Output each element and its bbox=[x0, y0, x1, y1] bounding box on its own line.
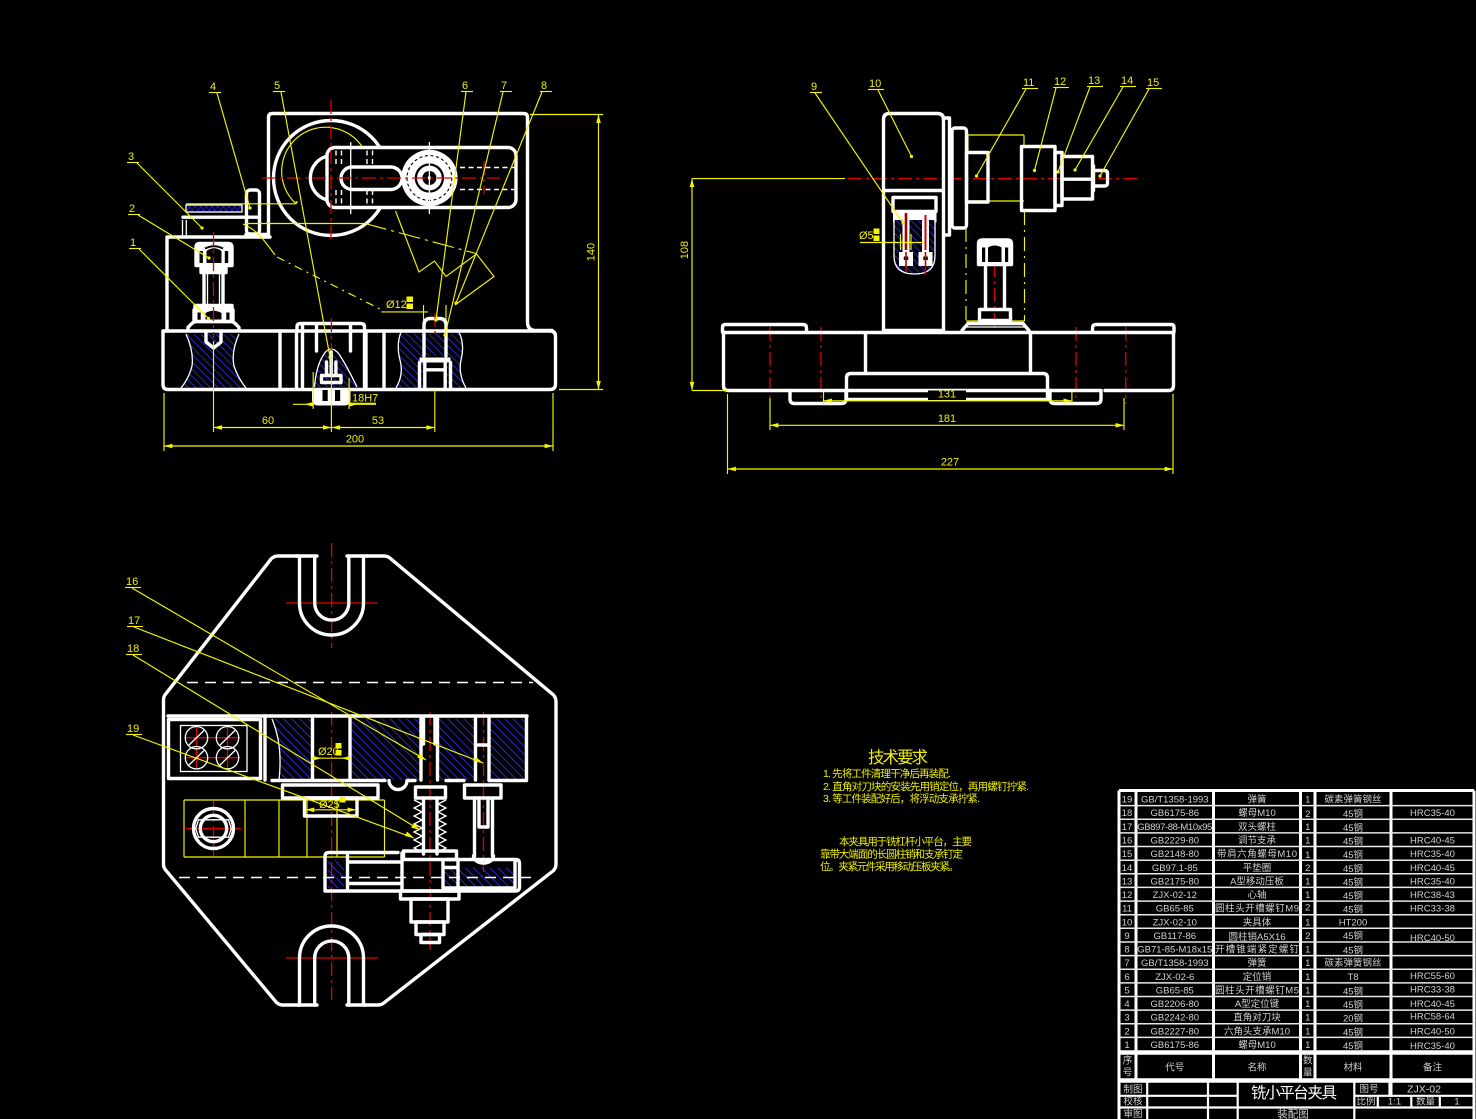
svg-text:螺母M10: 螺母M10 bbox=[1238, 1040, 1275, 1051]
svg-text:GB897-88-M10x95: GB897-88-M10x95 bbox=[1137, 822, 1212, 833]
svg-text:A型移动压板: A型移动压板 bbox=[1230, 875, 1284, 887]
svg-text:9: 9 bbox=[1124, 931, 1129, 942]
svg-text:19: 19 bbox=[127, 723, 139, 735]
svg-text:1. 先将工件清理干净后再装配.: 1. 先将工件清理干净后再装配. bbox=[823, 767, 951, 780]
svg-text:GB65-85: GB65-85 bbox=[1156, 904, 1194, 915]
svg-text:双头螺柱: 双头螺柱 bbox=[1238, 821, 1277, 833]
svg-text:圆柱头开槽螺钉M9: 圆柱头开槽螺钉M9 bbox=[1215, 903, 1299, 915]
svg-text:131: 131 bbox=[938, 389, 956, 401]
svg-text:HRC33-38: HRC33-38 bbox=[1410, 904, 1455, 915]
svg-text:13: 13 bbox=[1122, 876, 1133, 887]
svg-text:3. 等工件装配好后，将浮动支承拧紧.: 3. 等工件装配好后，将浮动支承拧紧. bbox=[823, 792, 980, 805]
svg-text:代号: 代号 bbox=[1165, 1063, 1184, 1074]
svg-text:18: 18 bbox=[127, 643, 139, 655]
svg-text:平垫圈: 平垫圈 bbox=[1243, 862, 1272, 874]
svg-text:靠带大端面的长圆柱销和支承钉定: 靠带大端面的长圆柱销和支承钉定 bbox=[820, 848, 964, 861]
svg-text:HRC55-60: HRC55-60 bbox=[1410, 971, 1455, 982]
svg-text:17: 17 bbox=[128, 615, 140, 627]
svg-text:3: 3 bbox=[128, 151, 134, 163]
svg-text:HT200: HT200 bbox=[1339, 917, 1368, 928]
svg-text:带肩六角螺母M10: 带肩六角螺母M10 bbox=[1217, 848, 1297, 860]
svg-text:2: 2 bbox=[1305, 903, 1310, 914]
svg-text:45钢: 45钢 bbox=[1343, 876, 1363, 888]
svg-text:螺母M10: 螺母M10 bbox=[1238, 808, 1275, 819]
svg-text:号: 号 bbox=[1123, 1068, 1133, 1079]
svg-text:本夹具用于铣杠杆小平台，主要: 本夹具用于铣杠杆小平台，主要 bbox=[839, 835, 972, 848]
svg-text:1: 1 bbox=[1305, 999, 1310, 1010]
svg-text:1: 1 bbox=[1305, 795, 1310, 806]
svg-text:HRC40-45: HRC40-45 bbox=[1410, 999, 1455, 1010]
svg-text:12: 12 bbox=[1122, 890, 1133, 901]
svg-text:定位销: 定位销 bbox=[1243, 971, 1272, 983]
svg-text:GB2242-80: GB2242-80 bbox=[1151, 1013, 1200, 1024]
svg-text:HRC35-40: HRC35-40 bbox=[1410, 876, 1455, 887]
svg-text:15: 15 bbox=[1147, 77, 1159, 89]
svg-text:Ø5: Ø5 bbox=[859, 230, 874, 242]
svg-text:1: 1 bbox=[1305, 986, 1310, 997]
svg-text:六角头支承M10: 六角头支承M10 bbox=[1224, 1025, 1290, 1037]
svg-text:11: 11 bbox=[1122, 904, 1132, 915]
svg-text:1: 1 bbox=[1305, 958, 1310, 969]
svg-text:7: 7 bbox=[1124, 958, 1129, 969]
svg-text:1: 1 bbox=[1305, 917, 1310, 928]
svg-text:ZJX-02: ZJX-02 bbox=[1407, 1084, 1441, 1096]
svg-text:1: 1 bbox=[1305, 1013, 1310, 1024]
svg-text:备注: 备注 bbox=[1423, 1062, 1443, 1074]
svg-text:2: 2 bbox=[1305, 931, 1310, 942]
svg-text:位。夹紧元件采用移动压板夹紧。: 位。夹紧元件采用移动压板夹紧。 bbox=[820, 860, 959, 873]
svg-text:45钢: 45钢 bbox=[1343, 836, 1363, 848]
svg-text:1: 1 bbox=[1454, 1097, 1459, 1108]
svg-text:GB65-85: GB65-85 bbox=[1156, 986, 1194, 997]
svg-text:夹具体: 夹具体 bbox=[1243, 916, 1272, 928]
svg-text:8: 8 bbox=[541, 80, 547, 92]
svg-text:181: 181 bbox=[938, 413, 956, 425]
svg-text:53: 53 bbox=[372, 415, 384, 427]
svg-text:3: 3 bbox=[1124, 1013, 1129, 1024]
svg-text:HRC40-45: HRC40-45 bbox=[1410, 836, 1455, 847]
svg-text:图号: 图号 bbox=[1359, 1084, 1378, 1095]
svg-text:10: 10 bbox=[869, 78, 881, 90]
svg-text:HRC38-43: HRC38-43 bbox=[1410, 890, 1455, 901]
svg-text:14: 14 bbox=[1121, 75, 1133, 87]
svg-text:45钢: 45钢 bbox=[1343, 890, 1363, 902]
svg-text:1: 1 bbox=[1305, 876, 1310, 887]
svg-text:1: 1 bbox=[1305, 890, 1310, 901]
svg-text:GB6175-86: GB6175-86 bbox=[1151, 808, 1200, 819]
svg-text:1: 1 bbox=[1124, 1040, 1129, 1051]
svg-text:2: 2 bbox=[1305, 809, 1310, 820]
svg-text:45钢: 45钢 bbox=[1343, 1026, 1363, 1038]
svg-text:数量: 数量 bbox=[1416, 1096, 1436, 1108]
svg-text:调节支承: 调节支承 bbox=[1238, 835, 1277, 847]
svg-text:1: 1 bbox=[1305, 1040, 1310, 1051]
svg-text:2. 直角对刀块的安装先用销定位，再用螺钉拧紧.: 2. 直角对刀块的安装先用销定位，再用螺钉拧紧. bbox=[823, 780, 1029, 793]
svg-text:圆柱销A5X16: 圆柱销A5X16 bbox=[1228, 931, 1285, 943]
svg-text:HRC35-40: HRC35-40 bbox=[1410, 808, 1455, 819]
svg-text:1: 1 bbox=[1305, 945, 1310, 956]
svg-text:16: 16 bbox=[126, 576, 138, 588]
svg-text:2: 2 bbox=[129, 203, 135, 215]
svg-text:比例: 比例 bbox=[1356, 1096, 1375, 1108]
svg-text:1: 1 bbox=[1305, 850, 1310, 861]
svg-text:11: 11 bbox=[1023, 77, 1034, 89]
svg-text:8: 8 bbox=[1124, 945, 1129, 956]
svg-text:45钢: 45钢 bbox=[1343, 849, 1363, 861]
svg-text:T8: T8 bbox=[1347, 972, 1358, 983]
svg-text:审图: 审图 bbox=[1123, 1108, 1142, 1119]
svg-text:1: 1 bbox=[1305, 822, 1310, 833]
svg-text:10: 10 bbox=[1122, 917, 1133, 928]
svg-text:227: 227 bbox=[941, 457, 959, 469]
svg-text:HRC35-40: HRC35-40 bbox=[1410, 1041, 1455, 1052]
svg-text:7: 7 bbox=[501, 80, 507, 92]
svg-text:GB71-85-M18x15: GB71-85-M18x15 bbox=[1137, 945, 1212, 956]
svg-text:1: 1 bbox=[1305, 836, 1310, 847]
svg-text:5: 5 bbox=[1124, 986, 1129, 997]
svg-text:45钢: 45钢 bbox=[1343, 1040, 1363, 1052]
svg-text:140: 140 bbox=[586, 243, 598, 261]
svg-text:弹簧: 弹簧 bbox=[1247, 957, 1267, 969]
svg-text:17: 17 bbox=[1122, 822, 1133, 833]
svg-text:装配图: 装配图 bbox=[1277, 1108, 1309, 1119]
svg-text:GB2206-80: GB2206-80 bbox=[1151, 999, 1200, 1010]
svg-text:45钢: 45钢 bbox=[1343, 808, 1363, 820]
svg-text:2: 2 bbox=[1124, 1026, 1129, 1037]
svg-text:60: 60 bbox=[262, 415, 274, 427]
svg-text:1:1: 1:1 bbox=[1388, 1097, 1401, 1108]
svg-text:19: 19 bbox=[1122, 795, 1133, 806]
svg-text:6: 6 bbox=[462, 80, 468, 92]
svg-text:GB2227-80: GB2227-80 bbox=[1151, 1026, 1200, 1037]
svg-text:序: 序 bbox=[1123, 1055, 1133, 1067]
svg-text:ZJX-02-6: ZJX-02-6 bbox=[1155, 972, 1194, 983]
svg-text:12: 12 bbox=[1054, 76, 1066, 88]
svg-text:数: 数 bbox=[1303, 1055, 1313, 1067]
svg-text:ZJX-02-10: ZJX-02-10 bbox=[1153, 917, 1197, 928]
svg-text:HRC35-40: HRC35-40 bbox=[1410, 849, 1455, 860]
svg-text:GB2148-80: GB2148-80 bbox=[1151, 849, 1200, 860]
svg-text:5: 5 bbox=[274, 80, 280, 92]
svg-text:弹簧: 弹簧 bbox=[1247, 794, 1267, 806]
svg-text:1: 1 bbox=[130, 237, 136, 249]
svg-text:量: 量 bbox=[1303, 1068, 1313, 1079]
svg-text:9: 9 bbox=[811, 81, 817, 93]
svg-text:6: 6 bbox=[1124, 972, 1129, 983]
svg-text:校核: 校核 bbox=[1123, 1096, 1143, 1108]
svg-text:20钢: 20钢 bbox=[1343, 1013, 1363, 1025]
svg-text:1: 1 bbox=[1305, 1026, 1310, 1037]
svg-text:13: 13 bbox=[1088, 75, 1100, 87]
svg-text:GB/T1358-1993: GB/T1358-1993 bbox=[1141, 958, 1209, 969]
svg-text:GB97.1-85: GB97.1-85 bbox=[1152, 863, 1198, 874]
svg-text:45钢: 45钢 bbox=[1343, 999, 1363, 1011]
svg-text:碳素弹簧钢丝: 碳素弹簧钢丝 bbox=[1324, 957, 1381, 969]
svg-text:45钢: 45钢 bbox=[1343, 863, 1363, 875]
svg-text:心轴: 心轴 bbox=[1247, 889, 1266, 901]
svg-text:45钢: 45钢 bbox=[1343, 945, 1363, 957]
svg-text:GB2229-80: GB2229-80 bbox=[1151, 836, 1200, 847]
svg-text:45钢: 45钢 bbox=[1343, 930, 1363, 942]
svg-text:45钢: 45钢 bbox=[1343, 822, 1363, 834]
svg-text:18H7: 18H7 bbox=[352, 393, 378, 405]
svg-text:4: 4 bbox=[1124, 999, 1129, 1010]
svg-text:材料: 材料 bbox=[1343, 1062, 1363, 1074]
svg-text:45钢: 45钢 bbox=[1343, 904, 1363, 916]
svg-text:HRC58-64: HRC58-64 bbox=[1410, 1012, 1455, 1023]
svg-text:14: 14 bbox=[1122, 863, 1133, 874]
svg-text:15: 15 bbox=[1122, 849, 1133, 860]
svg-text:开槽锥端紧定螺钉: 开槽锥端紧定螺钉 bbox=[1215, 944, 1299, 956]
svg-text:直角对刀块: 直角对刀块 bbox=[1233, 1012, 1281, 1024]
svg-text:圆柱头开槽螺钉M5: 圆柱头开槽螺钉M5 bbox=[1215, 985, 1299, 997]
svg-text:HRC40-50: HRC40-50 bbox=[1410, 933, 1455, 944]
svg-text:制图: 制图 bbox=[1123, 1084, 1142, 1096]
svg-text:技术要求: 技术要求 bbox=[868, 748, 928, 767]
svg-text:ZJX-02-12: ZJX-02-12 bbox=[1153, 890, 1197, 901]
svg-text:HRC40-45: HRC40-45 bbox=[1410, 863, 1455, 874]
svg-text:2: 2 bbox=[1305, 863, 1310, 874]
svg-text:HRC33-38: HRC33-38 bbox=[1410, 985, 1455, 996]
svg-text:GB117-86: GB117-86 bbox=[1153, 931, 1196, 942]
svg-text:18: 18 bbox=[1122, 808, 1133, 819]
svg-text:4: 4 bbox=[210, 81, 216, 93]
svg-text:A型定位键: A型定位键 bbox=[1235, 998, 1280, 1010]
svg-text:HRC40-50: HRC40-50 bbox=[1410, 1026, 1455, 1037]
svg-text:200: 200 bbox=[346, 434, 364, 446]
svg-text:GB2175-80: GB2175-80 bbox=[1151, 876, 1200, 887]
svg-text:108: 108 bbox=[679, 241, 691, 259]
svg-text:名称: 名称 bbox=[1247, 1062, 1267, 1074]
svg-text:1: 1 bbox=[1305, 972, 1310, 983]
svg-text:GB6175-86: GB6175-86 bbox=[1151, 1040, 1200, 1051]
svg-text:碳素弹簧钢丝: 碳素弹簧钢丝 bbox=[1324, 794, 1381, 806]
svg-text:45钢: 45钢 bbox=[1343, 986, 1363, 998]
svg-text:Ø12: Ø12 bbox=[386, 299, 407, 311]
svg-text:GB/T1358-1993: GB/T1358-1993 bbox=[1141, 795, 1209, 806]
svg-text:16: 16 bbox=[1122, 836, 1133, 847]
svg-text:铣小平台夹具: 铣小平台夹具 bbox=[1251, 1084, 1337, 1102]
